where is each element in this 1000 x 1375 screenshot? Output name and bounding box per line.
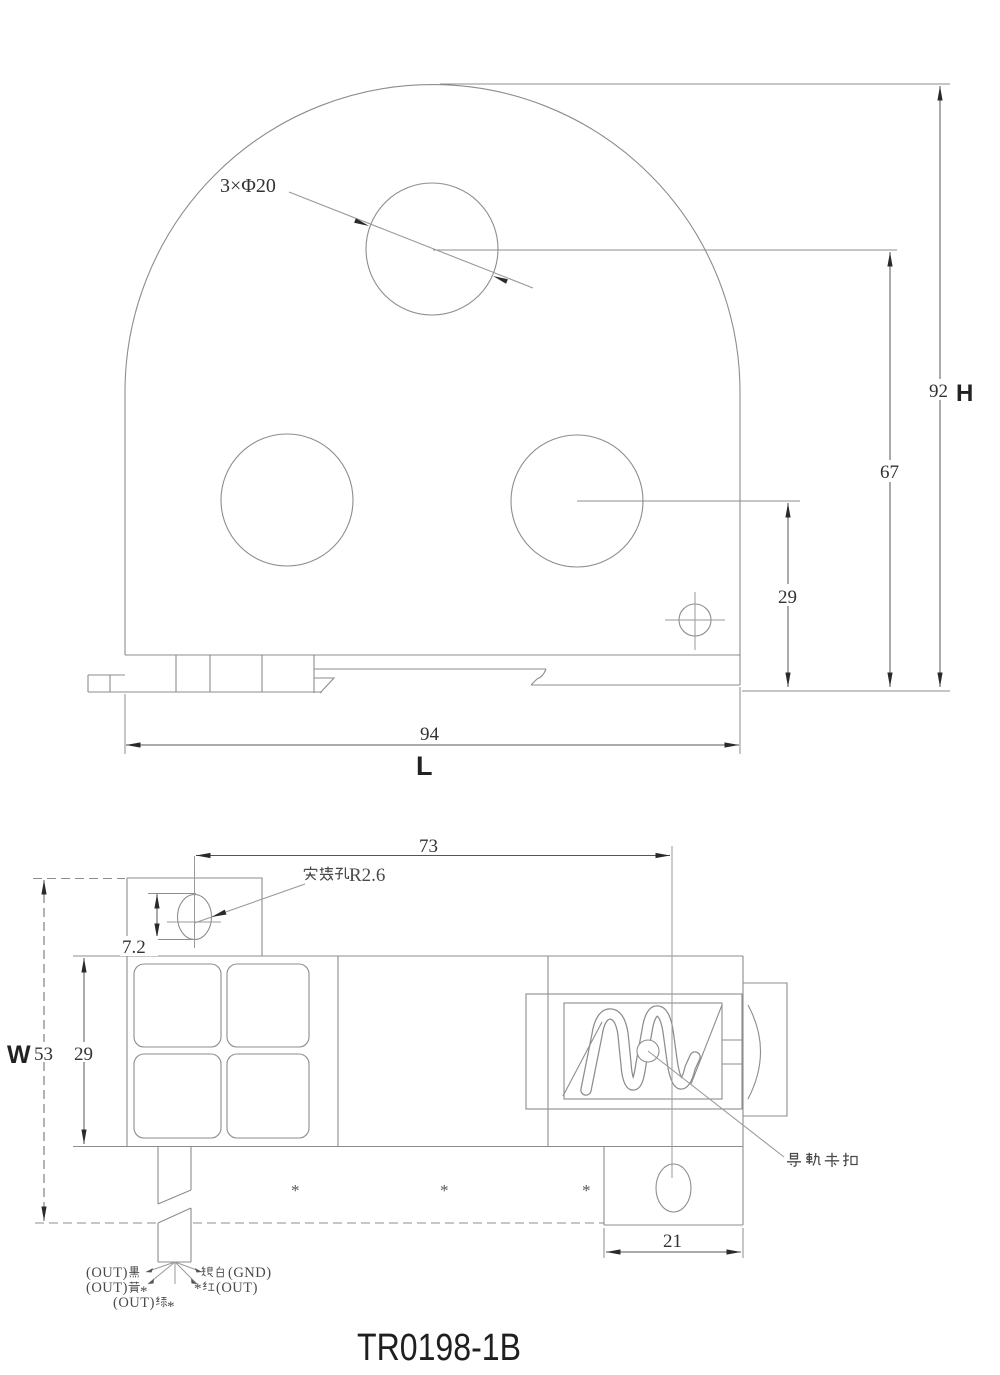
svg-text:TR0198-1B: TR0198-1B (357, 1327, 521, 1369)
svg-text:67: 67 (880, 462, 899, 483)
svg-text:(GND): (GND) (228, 1265, 272, 1281)
svg-text:L: L (416, 751, 433, 781)
svg-text:94: 94 (420, 724, 440, 745)
svg-text:29: 29 (778, 587, 797, 608)
svg-text:*: * (194, 1281, 202, 1297)
svg-text:3×Φ20: 3×Φ20 (220, 175, 276, 197)
svg-text:92: 92 (929, 381, 948, 402)
svg-text:29: 29 (74, 1044, 93, 1065)
svg-text:(OUT): (OUT) (113, 1295, 155, 1311)
svg-text:*: * (582, 1181, 591, 1200)
svg-text:*: * (140, 1284, 148, 1300)
svg-text:*: * (291, 1181, 300, 1200)
svg-text:53: 53 (34, 1044, 53, 1065)
svg-text:W: W (7, 1041, 31, 1069)
svg-text:*: * (440, 1181, 449, 1200)
svg-text:H: H (956, 380, 973, 407)
svg-text:73: 73 (419, 836, 438, 857)
svg-text:(OUT): (OUT) (86, 1265, 128, 1281)
svg-text:(OUT): (OUT) (86, 1280, 128, 1296)
svg-text:21: 21 (663, 1231, 682, 1252)
svg-text:*: * (167, 1299, 175, 1315)
svg-text:(OUT): (OUT) (216, 1280, 258, 1296)
svg-text:R2.6: R2.6 (349, 865, 385, 886)
svg-text:7.2: 7.2 (122, 937, 146, 958)
